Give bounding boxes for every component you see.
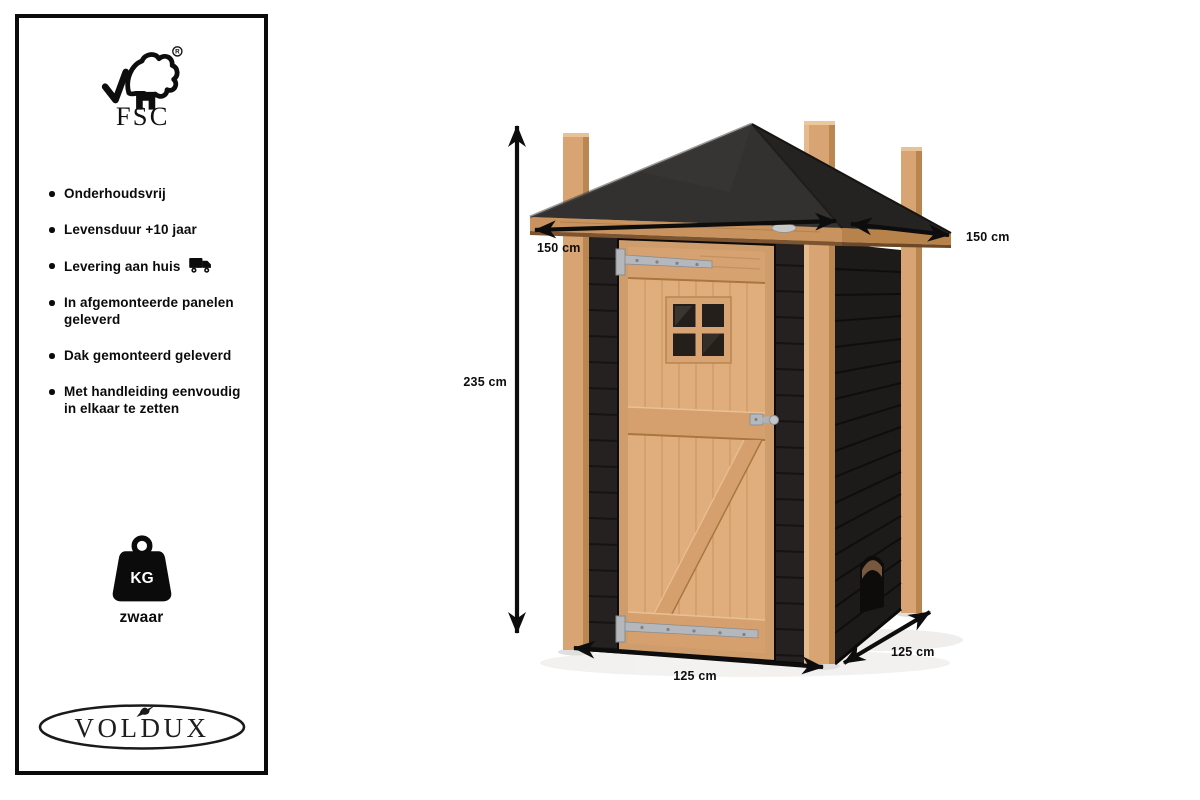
height-label: 235 cm bbox=[463, 375, 507, 389]
door bbox=[616, 239, 779, 661]
roof-front-label: 150 cm bbox=[537, 241, 581, 255]
base-front-label: 125 cm bbox=[673, 669, 717, 683]
roof-side-label: 150 cm bbox=[966, 230, 1010, 244]
window bbox=[666, 297, 731, 363]
product-infographic: { "panel": { "certification": { "name": … bbox=[0, 0, 1200, 800]
base-side-label: 125 cm bbox=[891, 645, 935, 659]
side-wall bbox=[835, 243, 901, 664]
shed-dimension-diagram: 235 cm 150 cm 150 cm 125 cm 125 cm bbox=[0, 0, 1200, 800]
roof bbox=[530, 124, 951, 233]
arch-opening bbox=[860, 555, 884, 613]
door-middle-rail bbox=[628, 407, 765, 440]
